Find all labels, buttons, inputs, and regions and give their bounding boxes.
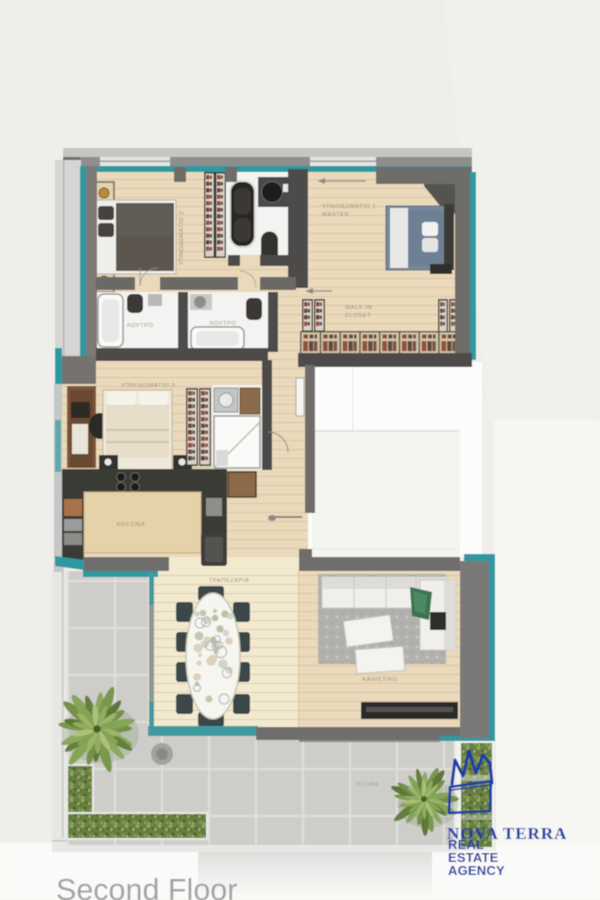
svg-text:AGENCY: AGENCY xyxy=(448,863,505,878)
svg-text:ΥΠΝΟΔΩΜΑΤΙΟ 3: ΥΠΝΟΔΩΜΑΤΙΟ 3 xyxy=(121,383,175,389)
svg-text:WALK-IN: WALK-IN xyxy=(345,305,372,311)
svg-text:ΥΠΝΟΔΩΜΑΤΙΟ 2: ΥΠΝΟΔΩΜΑΤΙΟ 2 xyxy=(179,211,185,265)
svg-text:ΠΙΣΙΝΑ: ΠΙΣΙΝΑ xyxy=(357,782,380,788)
svg-text:ΥΠΝΟΔΩΜΑΤΙΟ 1: ΥΠΝΟΔΩΜΑΤΙΟ 1 xyxy=(322,204,376,210)
svg-text:ΚΑΘΙΣΤΙΚΟ: ΚΑΘΙΣΤΙΚΟ xyxy=(362,677,397,683)
svg-text:ΤΡΑΠΕΖΑΡΙΑ: ΤΡΑΠΕΖΑΡΙΑ xyxy=(209,578,250,584)
svg-text:ΛΟΥΤΡΟ: ΛΟΥΤΡΟ xyxy=(127,323,154,329)
svg-text:MASTER: MASTER xyxy=(322,212,349,218)
svg-text:ΛΟΥΤΡΟ: ΛΟΥΤΡΟ xyxy=(210,321,237,327)
svg-text:CLOSET: CLOSET xyxy=(345,313,371,319)
svg-text:Second Floor: Second Floor xyxy=(56,873,237,900)
svg-text:ΚΟΥΖΙΝΑ: ΚΟΥΖΙΝΑ xyxy=(117,522,146,528)
